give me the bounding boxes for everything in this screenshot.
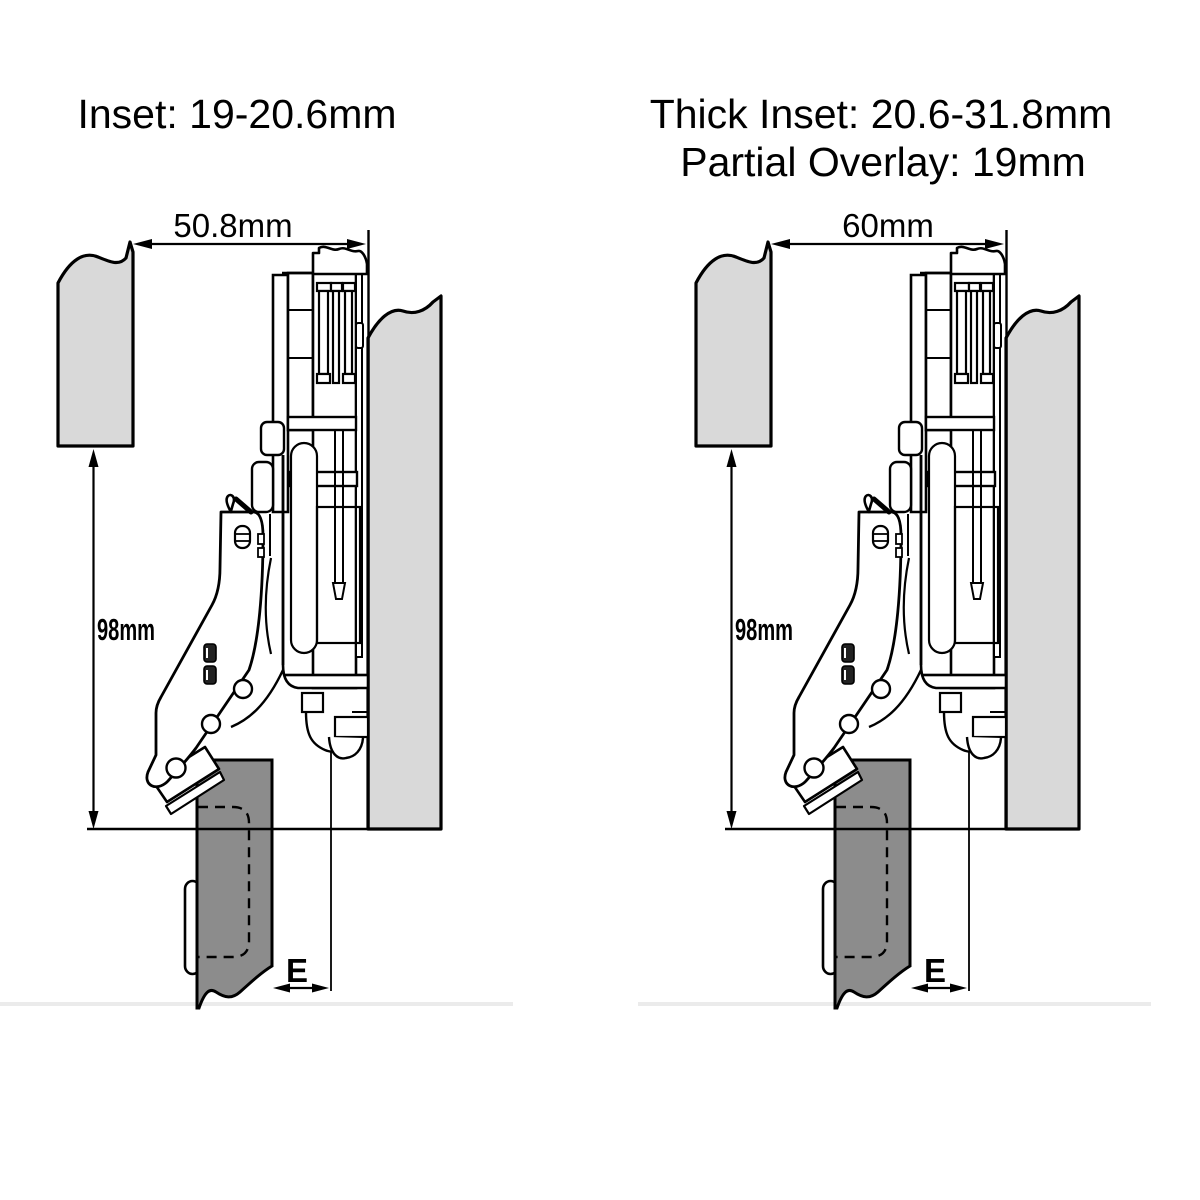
hinge-spec-page: Inset: 19-20.6mm 50.8mm 98mm E Thick Ins… <box>0 0 1200 1200</box>
hinge-diagrams-canvas: Inset: 19-20.6mm 50.8mm 98mm E Thick Ins… <box>0 0 1200 1200</box>
diagram-thick-inset: Thick Inset: 20.6-31.8mm Partial Overlay… <box>638 91 1151 1008</box>
inset-edge-dimension-label: E <box>286 952 308 989</box>
thick-inset-title-line1: Thick Inset: 20.6-31.8mm <box>650 91 1113 137</box>
thick-inset-height-dimension-label: 98mm <box>735 612 793 647</box>
thick-inset-title-line2: Partial Overlay: 19mm <box>680 139 1086 185</box>
thick-inset-width-dimension-label: 60mm <box>842 207 934 244</box>
thick-inset-edge-dimension-label: E <box>924 952 946 989</box>
inset-width-dimension-label: 50.8mm <box>173 207 292 244</box>
diagram-inset: Inset: 19-20.6mm 50.8mm 98mm E <box>0 91 513 1008</box>
inset-height-dimension-label: 98mm <box>97 612 155 647</box>
inset-title: Inset: 19-20.6mm <box>77 91 396 137</box>
